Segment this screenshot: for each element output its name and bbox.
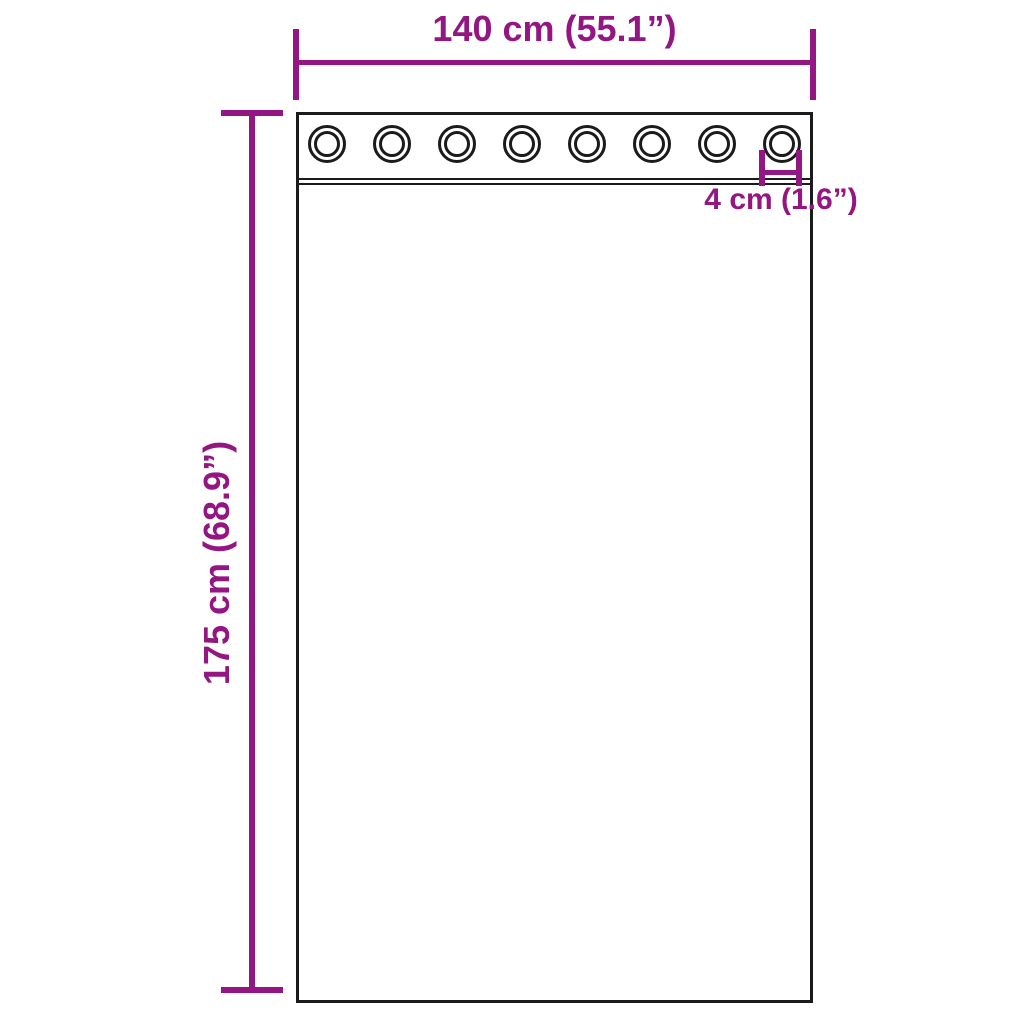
grommet-inner-ring <box>574 131 600 157</box>
height-dimension-label: 175 cm (68.9”) <box>197 283 237 843</box>
grommet-dimension-bar <box>762 170 802 175</box>
grommet-dimension-tick-right <box>796 150 802 186</box>
grommet-dimension-label: 4 cm (1.6”) <box>671 183 891 217</box>
grommet-icon <box>438 125 476 163</box>
grommet-icon <box>633 125 671 163</box>
height-dimension-tick-bottom <box>221 987 283 993</box>
height-dimension-tick-top <box>221 110 283 116</box>
curtain-dimension-diagram: 140 cm (55.1”) 175 cm (68.9”) 4 cm (1.6”… <box>0 0 1024 1024</box>
curtain-panel <box>296 112 813 1003</box>
width-dimension-label: 140 cm (55.1”) <box>296 9 813 49</box>
grommet-inner-ring <box>314 131 340 157</box>
grommet-inner-ring <box>379 131 405 157</box>
grommet-icon <box>568 125 606 163</box>
header-band-line-top <box>299 178 810 180</box>
grommet-icon <box>373 125 411 163</box>
grommet-icon <box>698 125 736 163</box>
grommet-inner-ring <box>444 131 470 157</box>
grommet-inner-ring <box>704 131 730 157</box>
width-dimension-line <box>296 60 813 65</box>
grommet-icon <box>308 125 346 163</box>
grommet-inner-ring <box>769 131 795 157</box>
grommet-icon <box>503 125 541 163</box>
grommet-dimension-tick-left <box>759 150 765 186</box>
grommet-inner-ring <box>509 131 535 157</box>
grommet-inner-ring <box>639 131 665 157</box>
height-dimension-line <box>249 113 255 990</box>
